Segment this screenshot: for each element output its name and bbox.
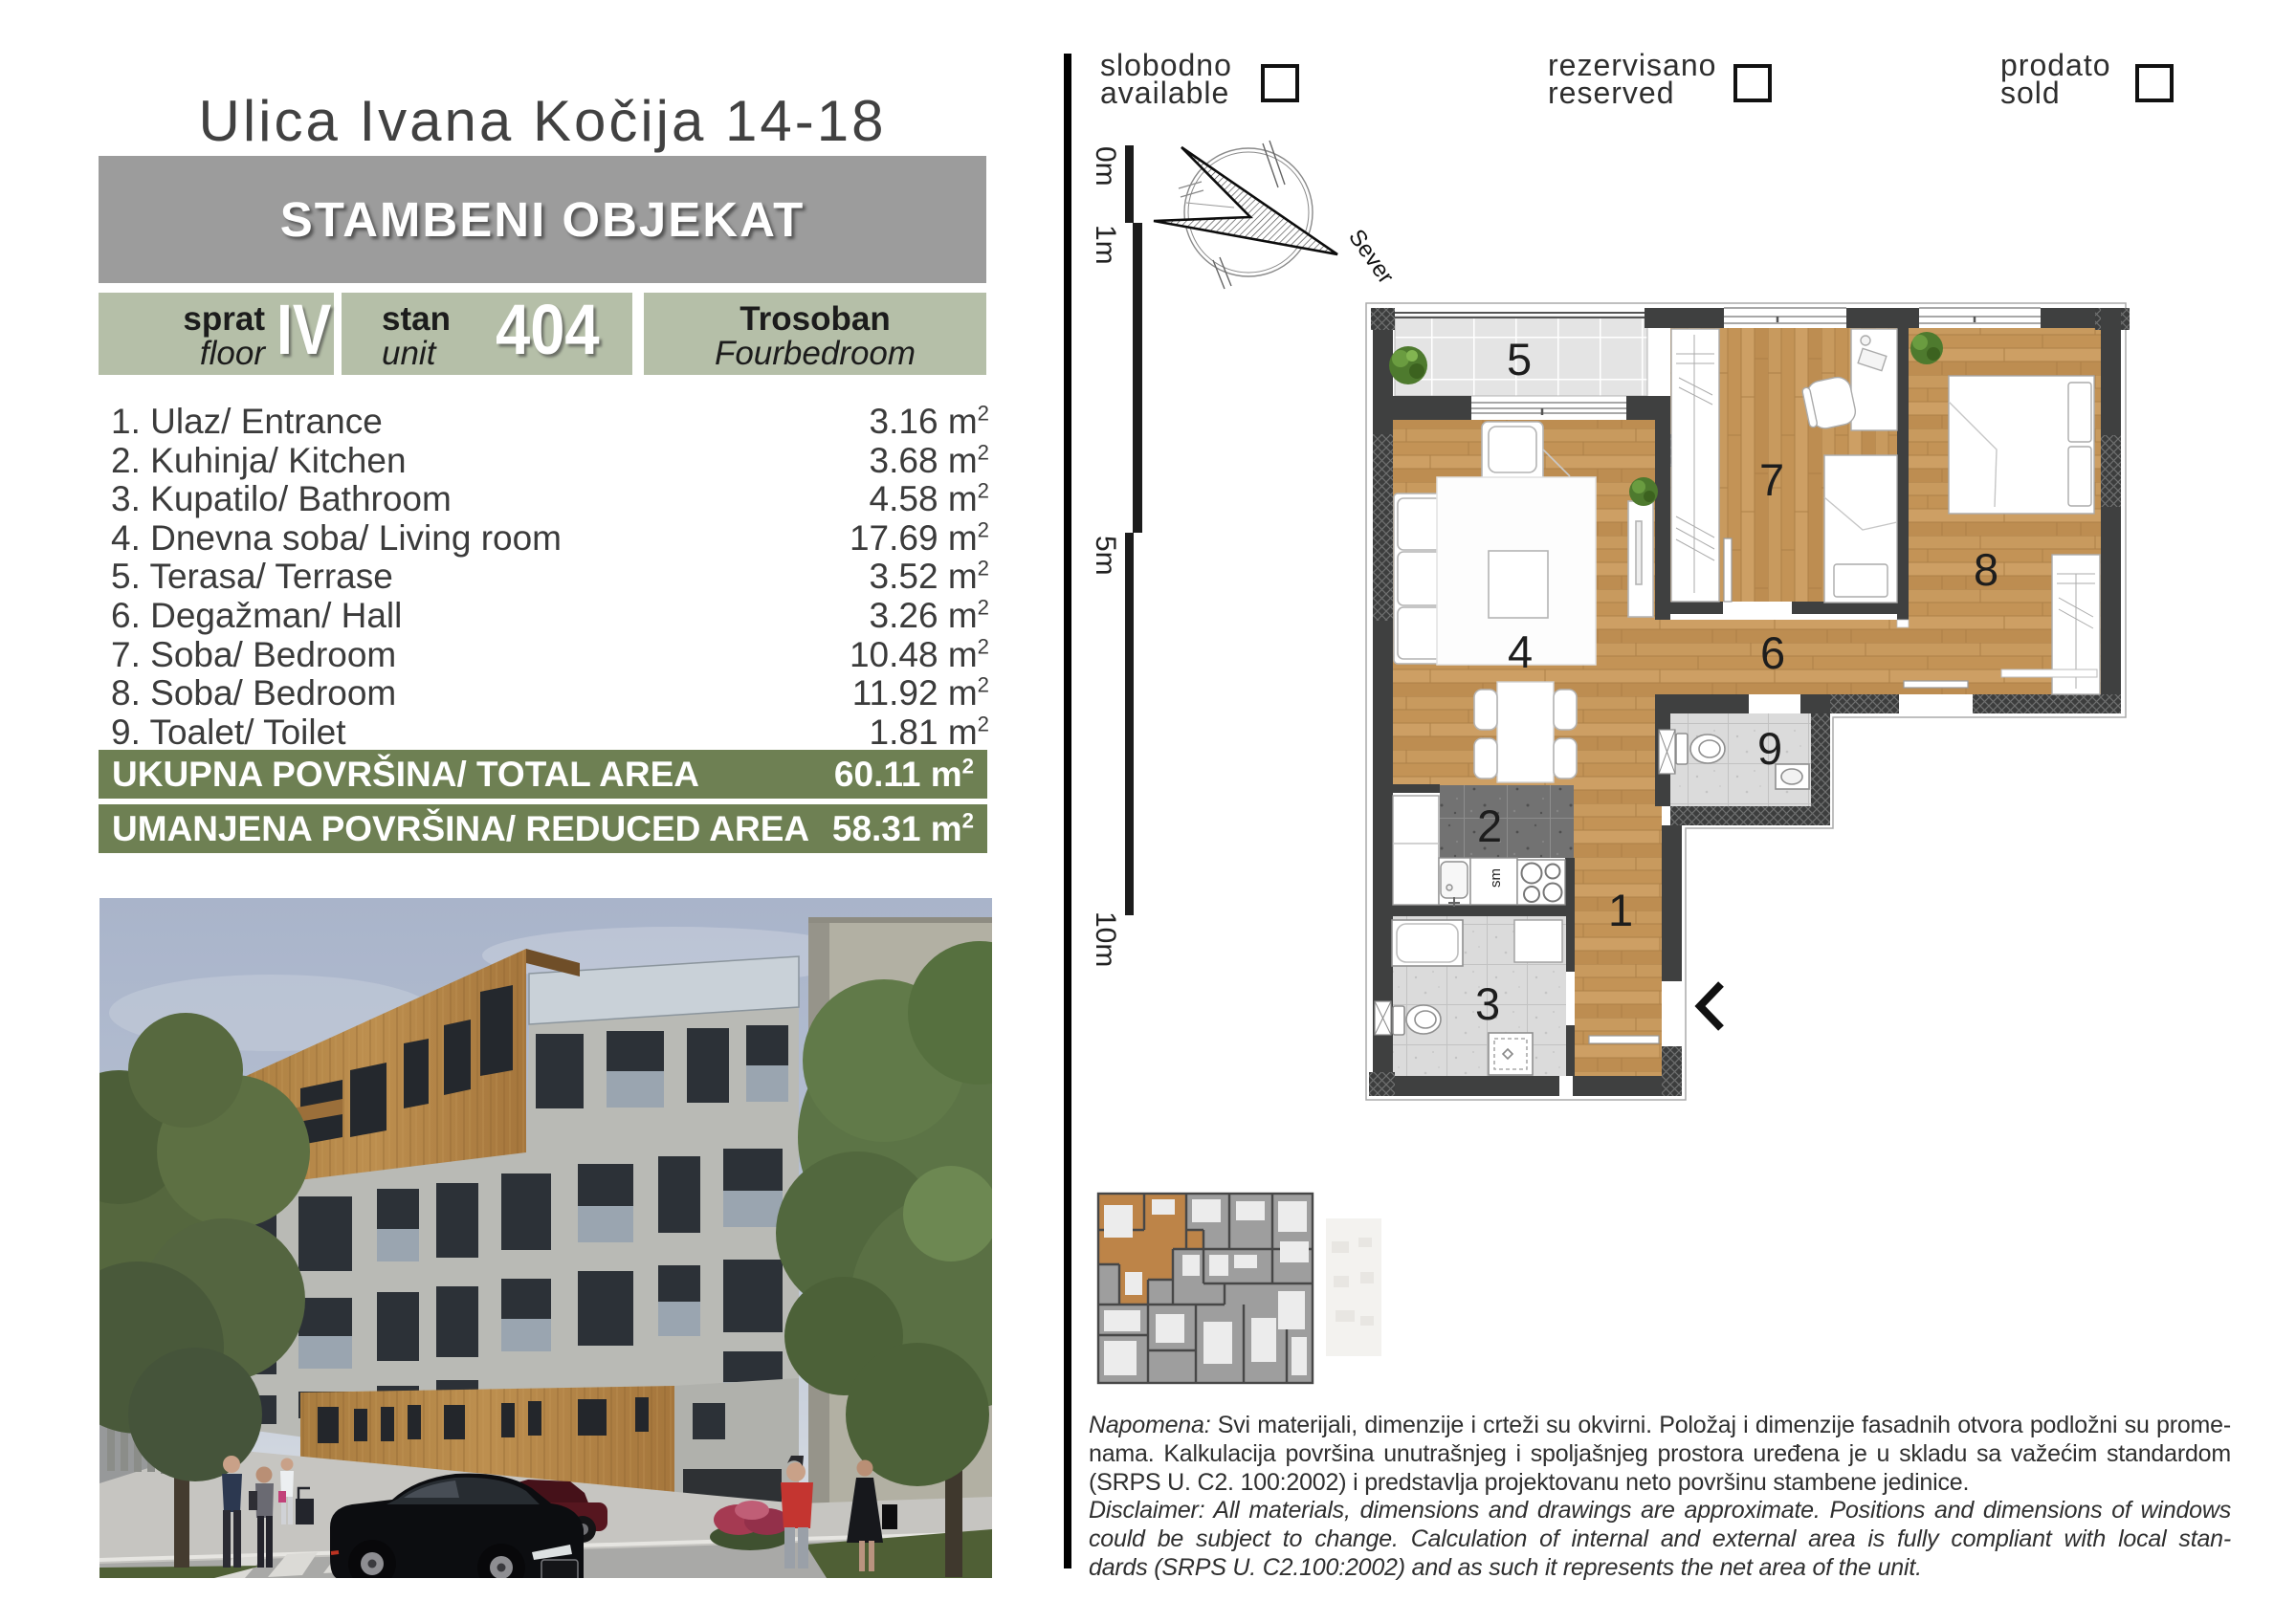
svg-text:3: 3	[1475, 978, 1500, 1029]
svg-text:5: 5	[1507, 334, 1532, 384]
svg-text:6: 6	[1760, 627, 1785, 678]
svg-text:5m: 5m	[1091, 536, 1121, 576]
svg-text:1: 1	[1608, 885, 1633, 935]
svg-text:10m: 10m	[1091, 911, 1121, 967]
svg-text:9: 9	[1757, 723, 1782, 774]
svg-text:4: 4	[1508, 626, 1533, 677]
svg-text:1m: 1m	[1091, 225, 1121, 265]
svg-text:2: 2	[1477, 801, 1502, 851]
svg-text:8: 8	[1974, 544, 1998, 595]
svg-text:0m: 0m	[1091, 146, 1121, 186]
svg-text:Sever: Sever	[1343, 225, 1399, 289]
svg-text:sm: sm	[1488, 868, 1504, 888]
svg-text:7: 7	[1759, 454, 1784, 505]
